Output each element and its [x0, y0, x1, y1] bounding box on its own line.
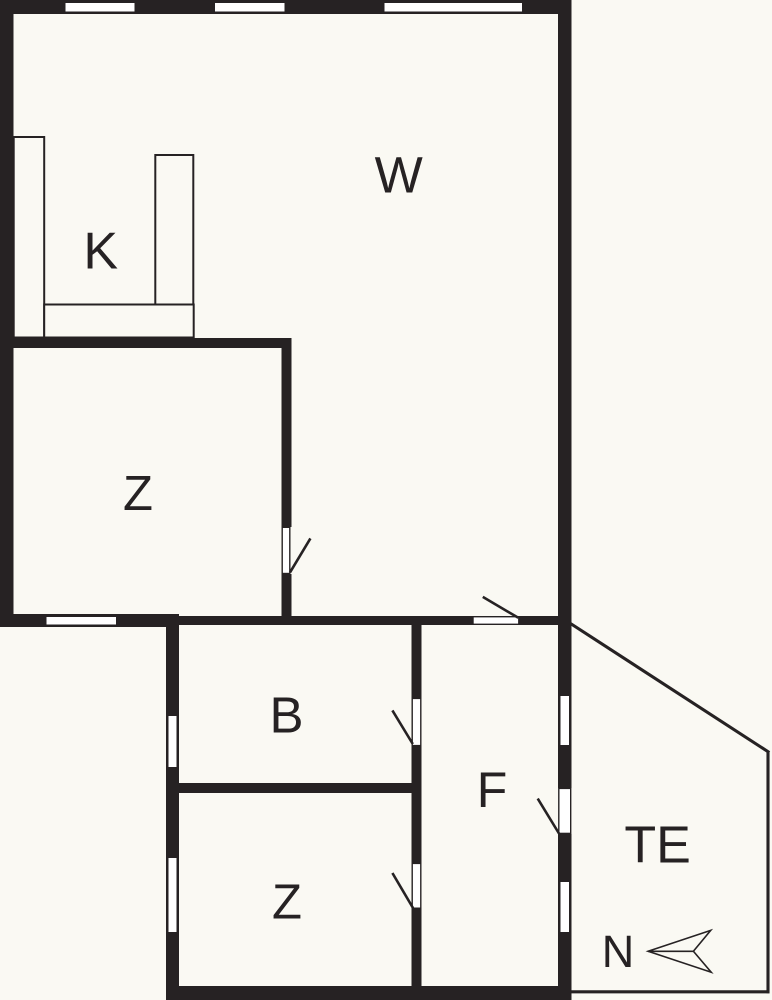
svg-text:B: B	[269, 687, 303, 744]
svg-text:K: K	[83, 223, 118, 281]
svg-text:Z: Z	[272, 876, 302, 930]
svg-text:F: F	[477, 762, 508, 818]
svg-text:N: N	[602, 926, 635, 977]
svg-text:W: W	[375, 147, 423, 204]
svg-text:Z: Z	[123, 467, 153, 521]
svg-text:TE: TE	[624, 817, 690, 875]
